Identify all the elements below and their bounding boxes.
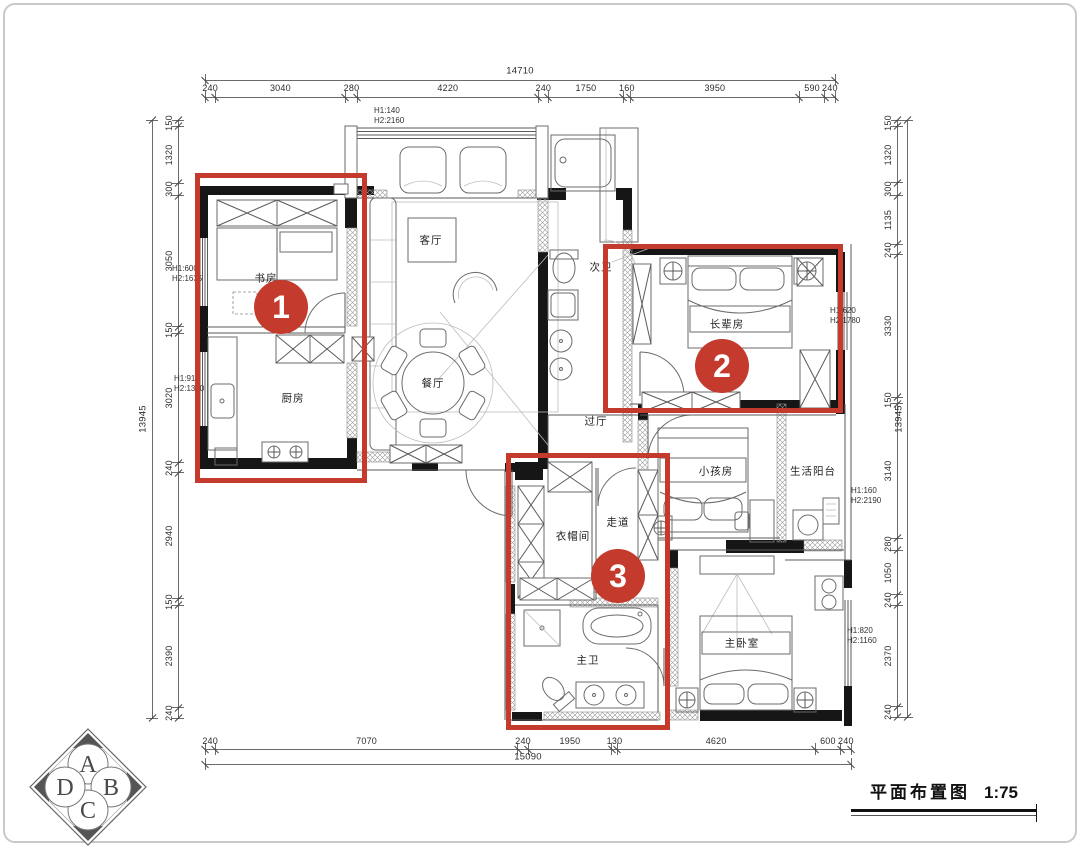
dimension-label: 240 (202, 736, 218, 746)
dimension-label: 590 (804, 83, 820, 93)
dimension-label: 240 (515, 736, 531, 746)
dimension-label: 7070 (356, 736, 377, 746)
room-label: 主卧室 (725, 636, 760, 651)
dimension-label: 2370 (883, 646, 893, 667)
dimension-label: 150 (883, 115, 893, 131)
dimension-total: 14710 (506, 66, 533, 77)
dimension-label: 240 (883, 592, 893, 608)
dimension-label: 160 (619, 83, 635, 93)
company-logo: A B C D (30, 729, 146, 845)
dimension-label: 240 (883, 704, 893, 720)
dimension-label: 4620 (706, 736, 727, 746)
floor-plan-page: A B C D 24030402804220240175016039505902… (0, 0, 1080, 846)
room-label: 过厅 (585, 414, 608, 429)
dimension-label: 130 (607, 736, 623, 746)
title-underline (851, 809, 1037, 812)
dimension-label: 1950 (560, 736, 581, 746)
window-height-annotation: H1:160H2:2190 (851, 486, 881, 506)
dimension-label: 300 (164, 182, 174, 198)
logo-letter-c: C (80, 798, 96, 824)
dimension-label: 1750 (576, 83, 597, 93)
dimension-label: 2940 (164, 525, 174, 546)
drawing-title: 平面布置图 (870, 778, 970, 803)
dimension-label: 1050 (883, 562, 893, 583)
room-label: 客厅 (420, 233, 443, 248)
dimension-label: 1320 (164, 144, 174, 165)
dimension-label: 2390 (164, 646, 174, 667)
dimension-label: 150 (164, 322, 174, 338)
region-badge-1: 1 (254, 280, 308, 334)
dimension-label: 1135 (883, 210, 893, 230)
room-label: 小孩房 (699, 464, 734, 479)
room-label: 生活阳台 (790, 464, 836, 479)
dimension-total: 15090 (514, 752, 541, 763)
drawing-scale: 1:75 (984, 783, 1018, 803)
dimension-label: 3040 (270, 83, 291, 93)
dimension-label: 280 (344, 83, 360, 93)
dimension-label: 240 (164, 460, 174, 476)
window-height-annotation: H1:140H2:2160 (374, 106, 404, 126)
dimension-label: 240 (838, 736, 854, 746)
dimension-label: 150 (883, 393, 893, 409)
room-label: 餐厅 (422, 376, 445, 391)
dimension-label: 240 (536, 83, 552, 93)
dimension-total: 13945 (138, 405, 149, 432)
highlight-rect-3 (506, 453, 670, 730)
logo-letter-d: D (56, 775, 73, 801)
dimension-label: 150 (164, 594, 174, 610)
dimension-label: 3020 (164, 387, 174, 408)
dimension-label: 280 (883, 536, 893, 552)
window-height-annotation: H1:820H2:1160 (847, 626, 877, 646)
dimension-label: 4220 (437, 83, 458, 93)
dimension-label: 240 (883, 242, 893, 258)
logo-letter-a: A (79, 752, 97, 778)
drawing-title-block: 平面布置图 1:75 (851, 778, 1037, 816)
logo-letter-b: B (103, 775, 119, 801)
region-badge-2: 2 (695, 339, 749, 393)
dimension-label: 3330 (883, 315, 893, 336)
dimension-label: 300 (883, 182, 893, 198)
dimension-label: 240 (164, 705, 174, 721)
dimension-label: 3140 (883, 460, 893, 481)
dimension-label: 150 (164, 115, 174, 131)
dimension-label: 3950 (704, 83, 725, 93)
dimension-total: 13945 (894, 405, 905, 432)
dimension-label: 1320 (883, 144, 893, 165)
dimension-label: 600 (820, 736, 836, 746)
region-badge-3: 3 (591, 549, 645, 603)
